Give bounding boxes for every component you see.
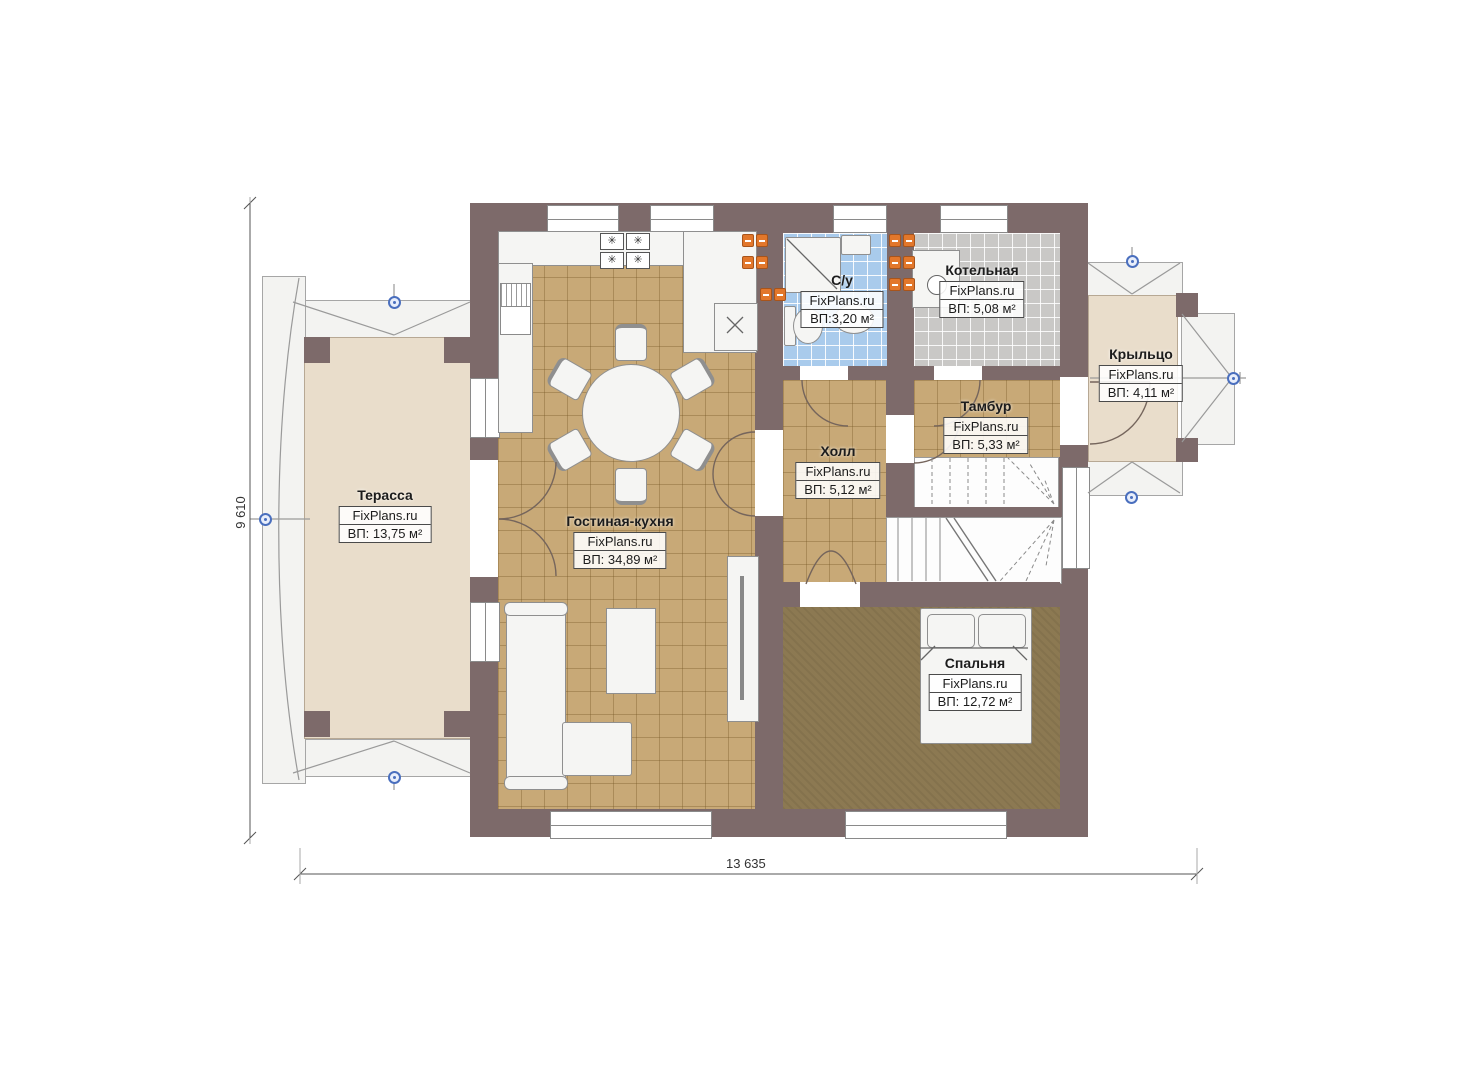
stove-burners-icon: ✳✳ ✳✳ — [600, 233, 650, 269]
porch-pillar — [1176, 293, 1198, 317]
chair — [615, 468, 647, 505]
room-area: ВП: 13,75 м² — [340, 524, 431, 542]
sofa-chaise — [562, 722, 632, 776]
room-info-box: FixPlans.ru ВП:3,20 м² — [800, 291, 883, 328]
wall-bath-boiler — [887, 233, 914, 366]
bathroom-corner-sink — [841, 235, 871, 255]
room-brand: FixPlans.ru — [1100, 366, 1182, 383]
entry-door-opening — [1060, 377, 1088, 445]
pillow — [978, 614, 1026, 648]
dimension-horizontal: 13 635 — [726, 856, 766, 871]
tv-screen — [740, 576, 744, 700]
socket-icon — [889, 256, 915, 269]
room-label-bedroom: Спальня FixPlans.ru ВП: 12,72 м² — [929, 655, 1022, 711]
socket-icon — [889, 234, 915, 247]
dimension-vertical: 9 610 — [233, 496, 248, 529]
room-brand: FixPlans.ru — [340, 507, 431, 524]
socket-icon — [742, 234, 768, 247]
room-area: ВП:3,20 м² — [801, 309, 882, 327]
room-name: Холл — [795, 443, 880, 459]
room-info-box: FixPlans.ru ВП: 12,72 м² — [929, 674, 1022, 711]
room-brand: FixPlans.ru — [944, 418, 1027, 435]
room-name: Тамбур — [943, 398, 1028, 414]
terrace-pillar — [444, 711, 470, 737]
stairs-upper-flight — [914, 457, 1059, 509]
window — [845, 811, 1007, 839]
room-info-box: FixPlans.ru ВП: 5,33 м² — [943, 417, 1028, 454]
dining-table — [582, 364, 680, 462]
appliance-box — [714, 303, 758, 351]
window — [940, 205, 1008, 233]
bedroom-door-opening — [800, 582, 860, 607]
terrace-roof-bottom — [293, 739, 472, 777]
sofa-armrest — [504, 602, 568, 616]
living-hall-door-opening — [755, 430, 783, 516]
pillow — [927, 614, 975, 648]
coffee-table — [606, 608, 656, 694]
sofa-armrest — [504, 776, 568, 790]
window — [550, 811, 712, 839]
wall-living-hall — [755, 231, 783, 809]
chair — [615, 324, 647, 361]
stairs-lower-flight — [886, 517, 1062, 584]
room-info-box: FixPlans.ru ВП: 13,75 м² — [339, 506, 432, 543]
window — [470, 602, 500, 662]
room-label-porch: Крыльцо FixPlans.ru ВП: 4,11 м² — [1099, 346, 1183, 402]
room-brand: FixPlans.ru — [930, 675, 1021, 692]
bathroom-door-opening — [800, 366, 848, 380]
room-area: ВП: 34,89 м² — [575, 550, 666, 568]
terrace-door-opening — [470, 460, 498, 577]
room-name: С/у — [800, 272, 883, 288]
terrace-pillar — [444, 337, 470, 363]
boiler-door-opening — [934, 366, 982, 380]
axis-marker-icon — [388, 771, 401, 784]
socket-icon — [760, 288, 786, 301]
terrace-roof-left — [262, 276, 306, 784]
room-label-terrace: Терасса FixPlans.ru ВП: 13,75 м² — [339, 487, 432, 543]
room-name: Котельная — [939, 262, 1024, 278]
room-area: ВП: 5,33 м² — [944, 435, 1027, 453]
sofa-body — [506, 608, 566, 782]
room-name: Гостиная-кухня — [566, 513, 673, 529]
terrace-pillar — [304, 711, 330, 737]
porch-roof-bottom — [1087, 461, 1183, 496]
window — [650, 205, 714, 233]
room-name: Терасса — [339, 487, 432, 503]
porch-pillar — [1176, 438, 1198, 462]
window — [470, 378, 500, 438]
room-label-hall: Холл FixPlans.ru ВП: 5,12 м² — [795, 443, 880, 499]
floor-plan: ✳✳ ✳✳ — [0, 0, 1474, 1080]
axis-marker-icon — [1227, 372, 1240, 385]
room-info-box: FixPlans.ru ВП: 34,89 м² — [574, 532, 667, 569]
terrace-pillar — [304, 337, 330, 363]
socket-icon — [889, 278, 915, 291]
room-area: ВП: 5,12 м² — [796, 480, 879, 498]
room-info-box: FixPlans.ru ВП: 5,12 м² — [795, 462, 880, 499]
room-brand: FixPlans.ru — [796, 463, 879, 480]
room-name: Спальня — [929, 655, 1022, 671]
kitchen-sink — [500, 283, 531, 335]
window — [1062, 467, 1090, 569]
vestibule-hall-door-opening — [886, 415, 914, 463]
axis-marker-icon — [1126, 255, 1139, 268]
room-area: ВП: 4,11 м² — [1100, 383, 1182, 401]
axis-marker-icon — [388, 296, 401, 309]
room-brand: FixPlans.ru — [801, 292, 882, 309]
socket-icon — [742, 256, 768, 269]
room-brand: FixPlans.ru — [575, 533, 666, 550]
room-area: ВП: 12,72 м² — [930, 692, 1021, 710]
axis-marker-icon — [1125, 491, 1138, 504]
room-brand: FixPlans.ru — [940, 282, 1023, 299]
window — [547, 205, 619, 233]
window — [833, 205, 887, 233]
room-name: Крыльцо — [1099, 346, 1183, 362]
room-label-living-kitchen: Гостиная-кухня FixPlans.ru ВП: 34,89 м² — [566, 513, 673, 569]
room-label-bathroom: С/у FixPlans.ru ВП:3,20 м² — [800, 272, 883, 328]
room-label-boiler: Котельная FixPlans.ru ВП: 5,08 м² — [939, 262, 1024, 318]
room-info-box: FixPlans.ru ВП: 5,08 м² — [939, 281, 1024, 318]
terrace-roof-top — [293, 300, 472, 338]
room-info-box: FixPlans.ru ВП: 4,11 м² — [1099, 365, 1183, 402]
room-area: ВП: 5,08 м² — [940, 299, 1023, 317]
room-label-vestibule: Тамбур FixPlans.ru ВП: 5,33 м² — [943, 398, 1028, 454]
axis-marker-icon — [259, 513, 272, 526]
